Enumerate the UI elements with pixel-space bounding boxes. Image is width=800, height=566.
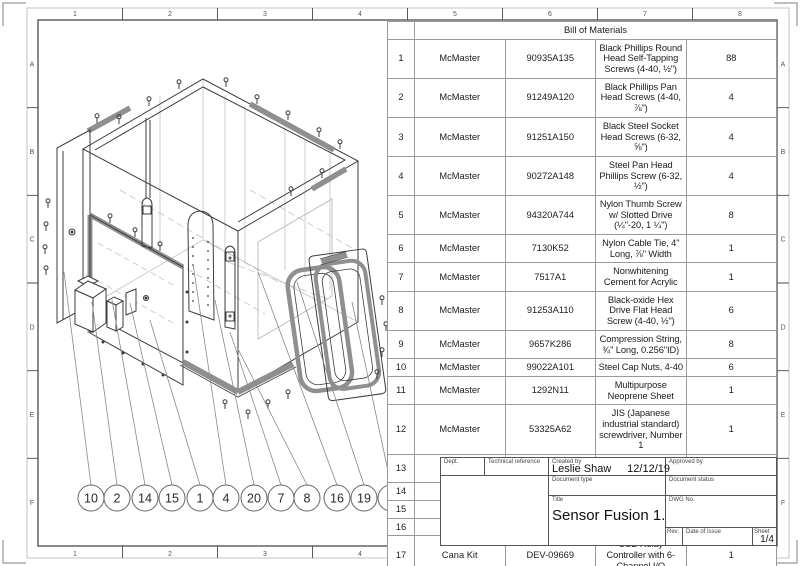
- title-block: Dept. Technical reference Created by Les…: [440, 457, 777, 546]
- bom-item-number: 1: [388, 39, 415, 78]
- left-side-screws: [43, 199, 50, 275]
- bom-part-number: 53325A62: [505, 405, 596, 455]
- arched-mount-plate: [188, 211, 214, 320]
- bom-vendor: McMaster: [415, 291, 506, 330]
- rev-label: Rev.: [667, 529, 679, 535]
- bom-item-number: 14: [388, 483, 415, 501]
- bom-quantity: 1: [686, 376, 777, 404]
- bom-part-number: 90935A135: [505, 39, 596, 78]
- svg-text:16: 16: [330, 492, 344, 506]
- grid-label: 1: [73, 11, 77, 18]
- bom-vendor: McMaster: [415, 359, 506, 377]
- technical-reference-cell: Technical reference: [484, 457, 549, 476]
- svg-text:2: 2: [114, 492, 121, 506]
- bom-quantity: 6: [686, 291, 777, 330]
- bom-vendor: McMaster: [415, 263, 506, 291]
- bom-item-number: 9: [388, 330, 415, 358]
- bom-description: Black Steel Socket Head Screws (6-32, ⅝"…: [596, 117, 687, 156]
- bom-header-spacer: [388, 22, 415, 40]
- bom-quantity: 4: [686, 156, 777, 195]
- title-cell: Title Sensor Fusion 1.6: [548, 495, 666, 546]
- grid-label: C: [29, 237, 34, 244]
- bom-item-number: 7: [388, 263, 415, 291]
- bom-vendor: McMaster: [415, 39, 506, 78]
- bom-vendor: McMaster: [415, 405, 506, 455]
- bom-part-number: 94320A744: [505, 195, 596, 234]
- bom-row: 8 McMaster 91253A110 Black-oxide Hex Dri…: [388, 291, 777, 330]
- svg-text:4: 4: [223, 492, 230, 506]
- callout-balloon: 20: [241, 485, 267, 511]
- title-label: Title: [552, 497, 563, 503]
- bom-part-number: 91251A150: [505, 117, 596, 156]
- bom-part-number: 99022A101: [505, 359, 596, 377]
- bom-row: 4 McMaster 90272A148 Steel Pan Head Phil…: [388, 156, 777, 195]
- bom-description: Black Phillips Round Head Self-Tapping S…: [596, 39, 687, 78]
- callout-balloon: 8: [294, 485, 320, 511]
- empty-cell: [440, 475, 549, 546]
- drawing-sheet: 1 2 3 4 5 6 7 8 1 2 3 4 5 6 7 8 A B C D …: [0, 0, 800, 566]
- grid-label: D: [29, 325, 34, 332]
- rev-cell: Rev.: [665, 527, 683, 546]
- bom-item-number: 17: [388, 536, 415, 566]
- grid-label: 2: [168, 11, 172, 18]
- svg-text:7: 7: [278, 492, 285, 506]
- bom-quantity: 1: [686, 235, 777, 263]
- grid-label: 4: [358, 11, 362, 18]
- bom-part-number: 91253A110: [505, 291, 596, 330]
- bom-row: 3 McMaster 91251A150 Black Steel Socket …: [388, 117, 777, 156]
- bom-description: JIS (Japanese industrial standard) screw…: [596, 405, 687, 455]
- grid-label: 6: [548, 11, 552, 18]
- technical-reference-label: Technical reference: [488, 459, 540, 465]
- callout-balloon: 4: [213, 485, 239, 511]
- bom-row: 2 McMaster 91249A120 Black Phillips Pan …: [388, 78, 777, 117]
- callout-balloon: 10: [78, 485, 104, 511]
- grid-label: 1: [73, 551, 77, 558]
- svg-text:15: 15: [165, 492, 179, 506]
- bom-vendor: McMaster: [415, 376, 506, 404]
- grid-label: F: [30, 500, 34, 507]
- bom-part-number: 7130K52: [505, 235, 596, 263]
- bom-item-number: 16: [388, 518, 415, 536]
- grid-label: 7: [643, 11, 647, 18]
- servo-assembly: [75, 276, 149, 332]
- svg-text:10: 10: [84, 492, 98, 506]
- bom-description: Compression String, ¾" Long, 0.256"ID): [596, 330, 687, 358]
- svg-text:19: 19: [357, 492, 371, 506]
- grid-label: 8: [738, 11, 742, 18]
- bom-item-number: 11: [388, 376, 415, 404]
- bom-item-number: 15: [388, 501, 415, 519]
- document-type-cell: Document type: [548, 475, 666, 496]
- grid-label: 2: [168, 551, 172, 558]
- bom-quantity: 8: [686, 330, 777, 358]
- bom-item-number: 3: [388, 117, 415, 156]
- date-of-issue-label: Date of issue: [686, 529, 721, 535]
- bom-part-number: 1292N11: [505, 376, 596, 404]
- dwg-no-label: DWG No.: [669, 497, 695, 503]
- bom-item-number: 13: [388, 455, 415, 483]
- bom-row: 7 McMaster 7517A1 Nonwhitening Cement fo…: [388, 263, 777, 291]
- callout-balloons: 10 2 14 15 1 4 20 7 8 16 19 3: [78, 485, 404, 511]
- created-date-value: 12/12/19: [627, 463, 670, 475]
- bom-description: Nylon Cable Tie, 4" Long, ⅞" Width: [596, 235, 687, 263]
- bom-header-row: Bill of Materials: [388, 22, 777, 40]
- bom-description: Nylon Thumb Screw w/ Slotted Drive (¼"-2…: [596, 195, 687, 234]
- svg-text:14: 14: [138, 492, 152, 506]
- bom-quantity: 88: [686, 39, 777, 78]
- approved-by-cell: Approved by 12/12/19: [665, 457, 777, 476]
- bom-part-number: 90272A148: [505, 156, 596, 195]
- approved-by-label: Approved by: [669, 459, 703, 465]
- bom-quantity: 4: [686, 117, 777, 156]
- dept-cell: Dept.: [440, 457, 485, 476]
- grid-label: C: [780, 237, 785, 244]
- bom-item-number: 12: [388, 405, 415, 455]
- grid-label: E: [781, 412, 786, 419]
- bom-part-number: 9657K286: [505, 330, 596, 358]
- bom-part-number: 91249A120: [505, 78, 596, 117]
- bom-part-number: 7517A1: [505, 263, 596, 291]
- bom-item-number: 6: [388, 235, 415, 263]
- drawing-title: Sensor Fusion 1.6: [552, 507, 674, 524]
- bom-description: Steel Cap Nuts, 4-40: [596, 359, 687, 377]
- bom-item-number: 8: [388, 291, 415, 330]
- dept-label: Dept.: [444, 459, 458, 465]
- svg-text:1: 1: [197, 492, 204, 506]
- bom-row: 9 McMaster 9657K286 Compression String, …: [388, 330, 777, 358]
- bom-vendor: McMaster: [415, 117, 506, 156]
- grid-label: B: [781, 149, 786, 156]
- sheet-cell: Sheet 1/4: [752, 527, 777, 546]
- callout-balloon: 2: [104, 485, 130, 511]
- bom-description: Black Phillips Pan Head Screws (4-40, ⅞"…: [596, 78, 687, 117]
- bom-description: Black-oxide Hex Drive Flat Head Screw (4…: [596, 291, 687, 330]
- bom-quantity: 6: [686, 359, 777, 377]
- grid-label: A: [781, 62, 786, 69]
- bom-row: 12 McMaster 53325A62 JIS (Japanese indus…: [388, 405, 777, 455]
- callout-balloon: 19: [351, 485, 377, 511]
- dwg-no-cell: DWG No.: [665, 495, 777, 528]
- roof-rails: [88, 104, 346, 189]
- bom-item-number: 10: [388, 359, 415, 377]
- grid-label: D: [780, 325, 785, 332]
- callout-balloon: 15: [159, 485, 185, 511]
- bom-item-number: 4: [388, 156, 415, 195]
- grid-label: 5: [453, 11, 457, 18]
- grid-label: A: [30, 62, 35, 69]
- callout-balloon: 1: [187, 485, 213, 511]
- bom-row: 10 McMaster 99022A101 Steel Cap Nuts, 4-…: [388, 359, 777, 377]
- callout-balloon: 7: [268, 485, 294, 511]
- document-status-cell: Document status: [665, 475, 777, 496]
- callout-balloon: 16: [324, 485, 350, 511]
- bom-vendor: McMaster: [415, 235, 506, 263]
- grid-label: B: [30, 149, 35, 156]
- bom-row: 1 McMaster 90935A135 Black Phillips Roun…: [388, 39, 777, 78]
- bom-description: Multipurpose Neoprene Sheet: [596, 376, 687, 404]
- grid-label: F: [781, 500, 785, 507]
- grid-label: 3: [263, 551, 267, 558]
- bom-row: 6 McMaster 7130K52 Nylon Cable Tie, 4" L…: [388, 235, 777, 263]
- bom-table-title: Bill of Materials: [415, 22, 777, 40]
- grid-label: 3: [263, 11, 267, 18]
- svg-text:20: 20: [247, 492, 261, 506]
- bom-quantity: 1: [686, 405, 777, 455]
- document-status-label: Document status: [669, 477, 714, 483]
- bom-quantity: 8: [686, 195, 777, 234]
- bom-item-number: 2: [388, 78, 415, 117]
- bom-quantity: 4: [686, 78, 777, 117]
- created-by-value: Leslie Shaw: [552, 463, 611, 475]
- date-of-issue-cell: Date of issue: [682, 527, 753, 546]
- bom-vendor: McMaster: [415, 156, 506, 195]
- bom-vendor: McMaster: [415, 330, 506, 358]
- bom-quantity: 1: [686, 263, 777, 291]
- sheet-number: 1/4: [760, 534, 774, 545]
- document-type-label: Document type: [552, 477, 592, 483]
- bom-description: Steel Pan Head Phillips Screw (6-32, ½"): [596, 156, 687, 195]
- svg-text:8: 8: [304, 492, 311, 506]
- grid-label: E: [30, 412, 35, 419]
- callout-balloon: 14: [132, 485, 158, 511]
- bom-vendor: McMaster: [415, 195, 506, 234]
- bom-item-number: 5: [388, 195, 415, 234]
- bom-row: 5 McMaster 94320A744 Nylon Thumb Screw w…: [388, 195, 777, 234]
- grid-label: 4: [358, 551, 362, 558]
- bom-description: Nonwhitening Cement for Acrylic: [596, 263, 687, 291]
- bom-vendor: McMaster: [415, 78, 506, 117]
- bom-row: 11 McMaster 1292N11 Multipurpose Neopren…: [388, 376, 777, 404]
